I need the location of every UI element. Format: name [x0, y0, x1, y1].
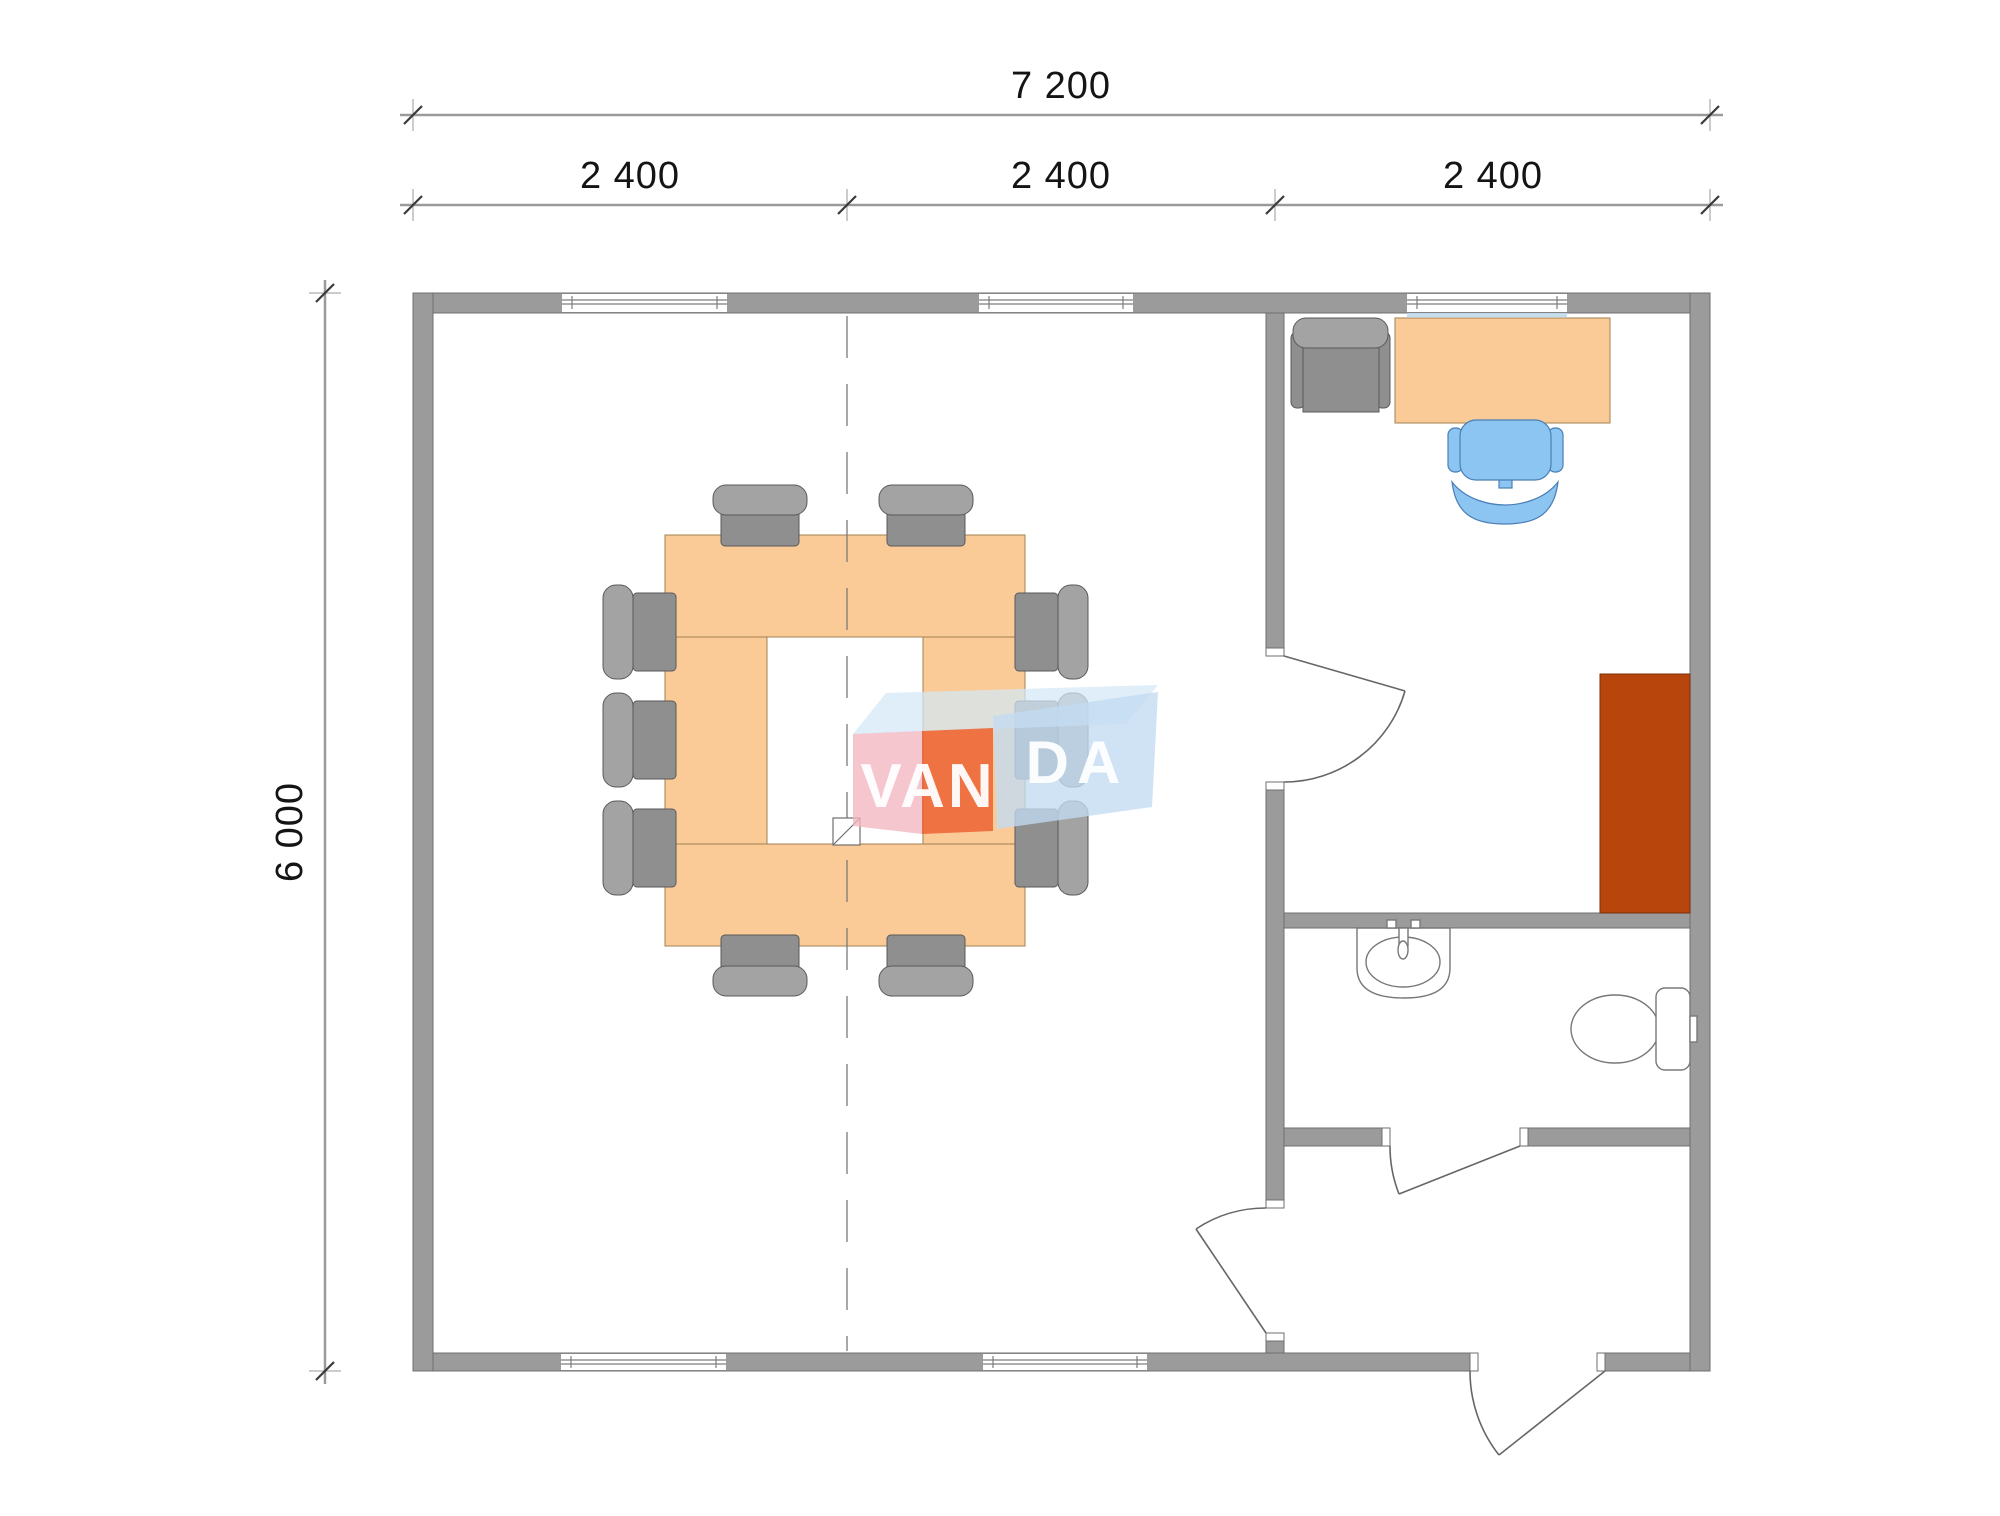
bathroom-hall-wall-left [1284, 1128, 1390, 1146]
floor-plan-drawing: 7 200 2 400 2 400 2 400 6 000 [0, 0, 2000, 1516]
table-section-bottom [665, 844, 1025, 946]
office-bathroom-wall [1284, 913, 1690, 928]
floor-plan-canvas: 7 200 2 400 2 400 2 400 6 000 [0, 0, 2000, 1516]
entrance-opening [1470, 1352, 1605, 1372]
door-meeting-room [1196, 1208, 1266, 1333]
dim-label-7200: 7 200 [1011, 65, 1111, 107]
window-glass-strip [1407, 313, 1567, 317]
partition-wall-vertical-upper [1266, 313, 1284, 648]
chair [713, 485, 807, 546]
chair [713, 935, 807, 996]
cabinet [1600, 674, 1690, 913]
watermark-text-van: VAN [860, 752, 995, 821]
doors [1196, 656, 1605, 1455]
dim-label-bay-1: 2 400 [580, 155, 680, 197]
chair [879, 485, 973, 546]
toilet [1571, 988, 1697, 1070]
office-chair [1448, 420, 1563, 524]
dim-label-6000: 6 000 [269, 782, 311, 882]
window [979, 294, 1133, 312]
chair [603, 801, 676, 895]
office-desk [1395, 318, 1610, 423]
door-bathroom [1390, 1146, 1520, 1194]
vanda-watermark: VAN DA [853, 685, 1158, 834]
exterior-wall-left [413, 293, 433, 1371]
toilet-tank [1656, 988, 1690, 1070]
watermark-text-da: DA [1026, 729, 1129, 796]
dimension-top-bays: 2 400 2 400 2 400 [400, 155, 1723, 221]
dim-label-bay-3: 2 400 [1443, 155, 1543, 197]
bathroom-hall-wall-right [1520, 1128, 1690, 1146]
window [1407, 294, 1567, 317]
door-office [1284, 656, 1405, 782]
sink [1357, 920, 1450, 998]
table-section-top [665, 535, 1025, 637]
chair [879, 935, 973, 996]
table-section-left [665, 637, 767, 844]
toilet-bowl [1571, 995, 1659, 1063]
dimension-left-total: 6 000 [269, 280, 341, 1384]
dim-label-bay-2: 2 400 [1011, 155, 1111, 197]
chair [603, 585, 676, 679]
toilet-flush [1690, 1016, 1697, 1042]
chair [603, 693, 676, 787]
window [561, 1354, 726, 1370]
partition-wall-vertical-lower [1266, 1341, 1284, 1353]
window [983, 1354, 1147, 1370]
dimension-top-total: 7 200 [400, 65, 1723, 131]
window [562, 294, 727, 312]
exterior-wall-right [1690, 293, 1710, 1371]
office-armchair [1291, 318, 1390, 412]
partition-wall-vertical-middle [1266, 790, 1284, 1200]
chair [1015, 585, 1088, 679]
door-entrance [1470, 1371, 1605, 1455]
office-chair-seat [1460, 420, 1551, 480]
